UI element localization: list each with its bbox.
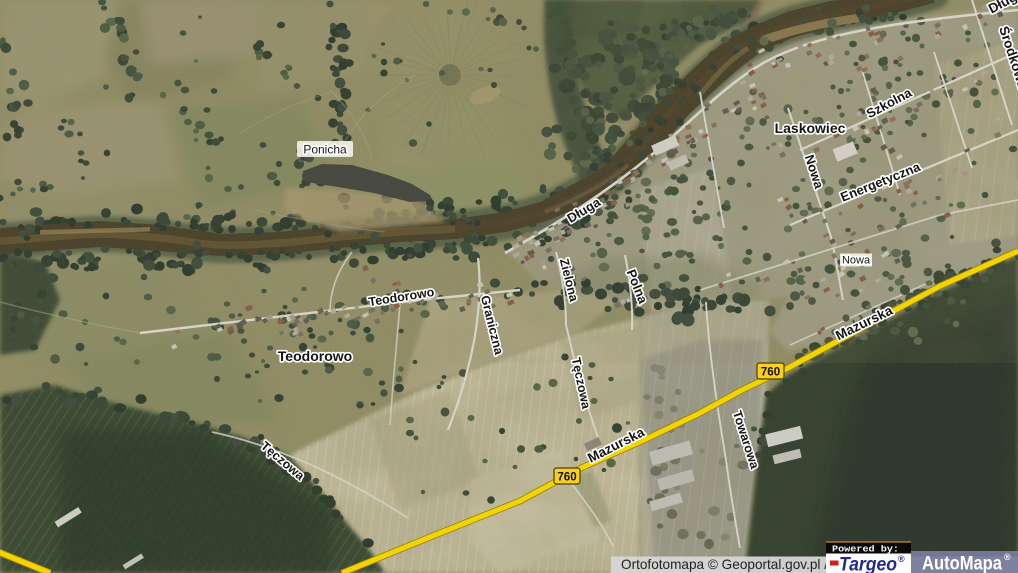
svg-text:Powered by:: Powered by: (832, 544, 899, 555)
svg-text:Nowa: Nowa (842, 255, 871, 267)
svg-text:760: 760 (761, 367, 780, 379)
svg-text:Laskowiec: Laskowiec (775, 120, 846, 136)
svg-text:Ortofotomapa © Geoportal.gov.p: Ortofotomapa © Geoportal.gov.pl / (621, 557, 828, 572)
svg-text:760: 760 (557, 472, 576, 484)
svg-text:Ponicha: Ponicha (303, 143, 347, 157)
svg-text:®: ® (1004, 552, 1011, 562)
svg-text:AutoMapa: AutoMapa (922, 554, 1002, 573)
svg-text:Teodorowo: Teodorowo (278, 348, 352, 364)
svg-text:®: ® (898, 554, 905, 564)
svg-text:Targeo: Targeo (839, 555, 897, 573)
